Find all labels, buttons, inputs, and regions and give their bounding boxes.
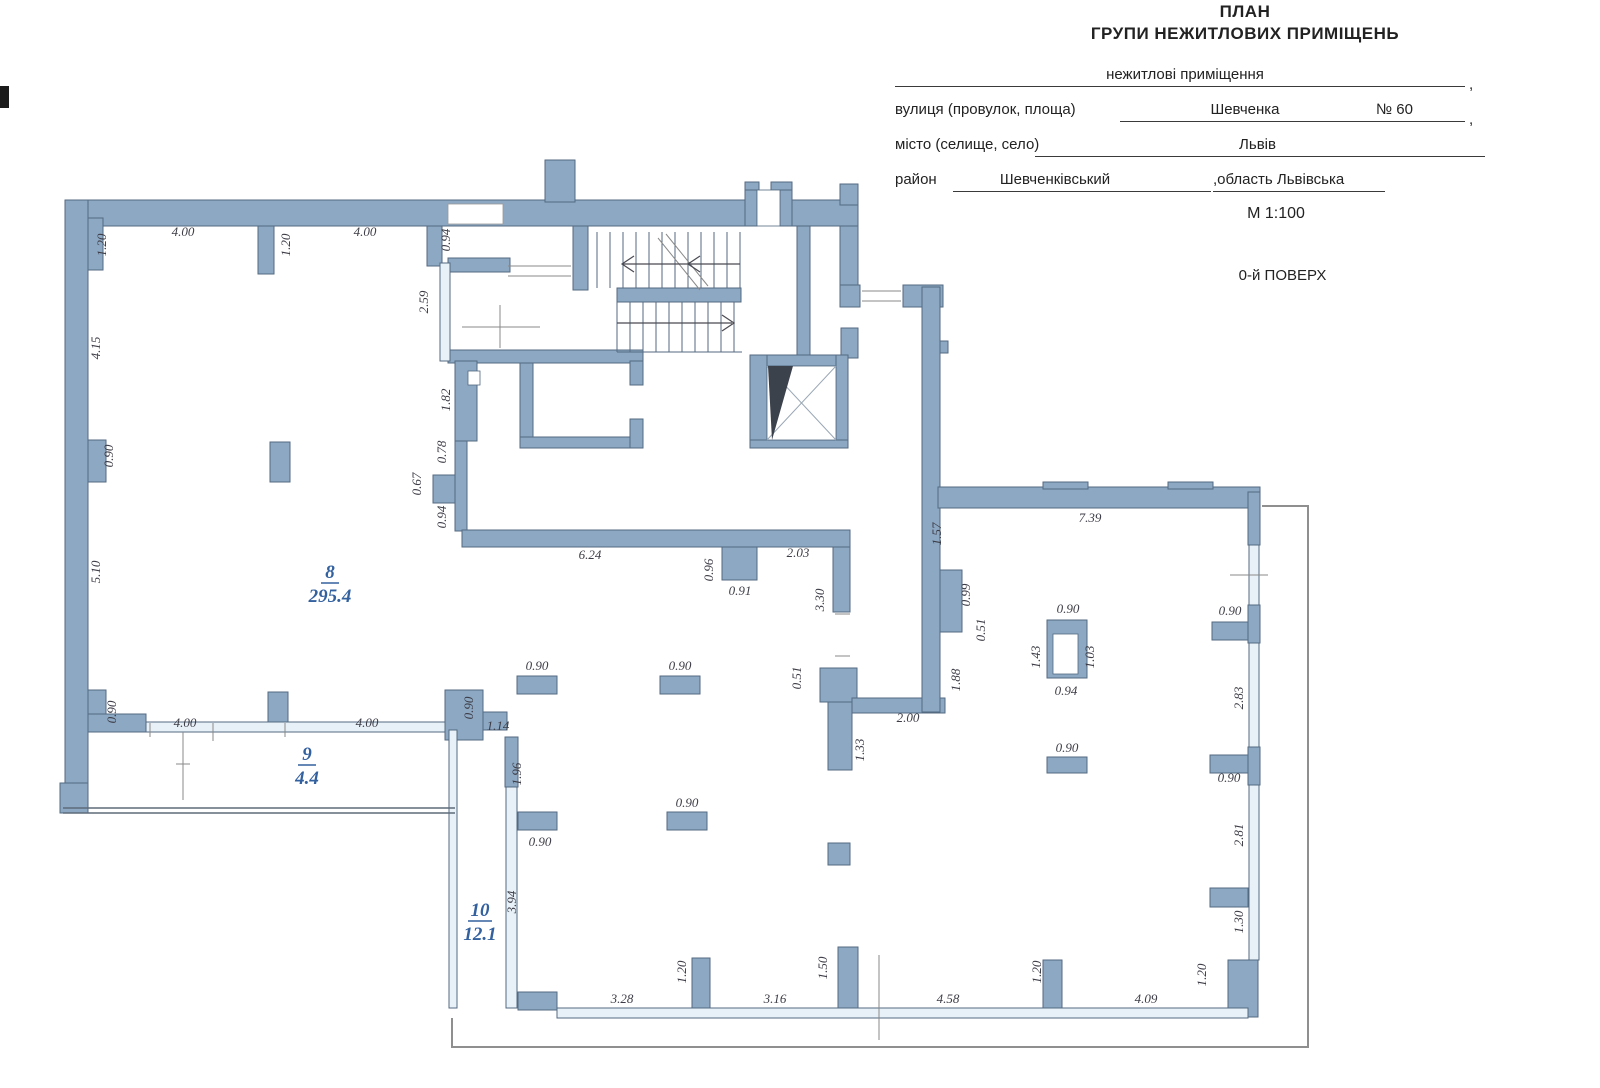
dim-label: 0.90 [461, 696, 476, 719]
dim-label: 1.50 [815, 956, 830, 979]
dim-label: 0.51 [789, 667, 804, 690]
dim-label: 0.67 [409, 472, 424, 495]
dim-label: 0.90 [1219, 603, 1242, 618]
dim-label: 4.58 [937, 991, 960, 1006]
dim-label: 0.90 [526, 658, 549, 673]
dim-label: 4.00 [356, 715, 379, 730]
dim-label: 4.09 [1135, 991, 1158, 1006]
dim-label: 1.88 [948, 668, 963, 691]
dim-label: 1.20 [1194, 963, 1209, 986]
site-boundary [452, 506, 1308, 1047]
dim-label: 0.96 [701, 558, 716, 581]
dim-label: 0.94 [438, 228, 453, 251]
dim-label: 1.20 [1029, 960, 1044, 983]
dim-label: 0.90 [1056, 740, 1079, 755]
staircase [597, 232, 742, 352]
stair-landing [617, 288, 741, 302]
dim-label: 1.20 [278, 233, 293, 256]
dim-label: 0.90 [101, 444, 116, 467]
room-area: 12.1 [463, 924, 496, 945]
dim-label: 5.10 [88, 560, 103, 583]
dim-label: 3.16 [763, 991, 787, 1006]
stair-arrow-up [622, 256, 740, 272]
dim-label: 4.00 [354, 224, 377, 239]
dimension-labels: 4.00 4.00 6.24 2.03 0.91 7.39 0.90 0.90 … [88, 224, 1246, 1006]
elevator-shaft [767, 366, 836, 440]
dim-label: 3.94 [504, 890, 519, 914]
room-area: 295.4 [308, 586, 352, 607]
dim-label: 0.94 [434, 505, 449, 528]
dim-label: 0.90 [1057, 601, 1080, 616]
dim-label: 0.78 [434, 440, 449, 463]
dim-label: 0.90 [669, 658, 692, 673]
dim-label: 1.33 [852, 738, 867, 761]
dim-label: 0.90 [529, 834, 552, 849]
dim-label: 0.51 [973, 619, 988, 642]
dim-label: 0.90 [104, 700, 119, 723]
dim-label: 2.81 [1231, 824, 1246, 847]
dim-label: 2.59 [416, 290, 431, 313]
room-labels: 8 295.4 9 4.4 10 12.1 [294, 562, 497, 945]
dim-label: 0.99 [958, 583, 973, 606]
dim-label: 4.00 [174, 715, 197, 730]
dim-label: 0.90 [676, 795, 699, 810]
dim-label: 2.00 [897, 710, 920, 725]
window-walls [146, 263, 1259, 1018]
floor-plan: 4.00 4.00 6.24 2.03 0.91 7.39 0.90 0.90 … [0, 0, 1600, 1088]
room-number: 9 [302, 744, 312, 765]
dim-label: 3.30 [812, 588, 827, 612]
room-number: 10 [471, 900, 491, 921]
dim-label: 1.20 [94, 233, 109, 256]
dim-label: 1.14 [487, 718, 510, 733]
dim-label: 1.96 [509, 762, 524, 785]
dim-label: 4.15 [88, 336, 103, 359]
dim-label: 1.43 [1028, 645, 1043, 668]
dim-label: 0.90 [1218, 770, 1241, 785]
dim-label: 0.91 [729, 583, 752, 598]
dim-label: 7.39 [1079, 510, 1102, 525]
dim-label: 3.28 [610, 991, 634, 1006]
dim-label: 1.82 [438, 388, 453, 411]
dim-label: 2.83 [1231, 686, 1246, 709]
dim-label: 4.00 [172, 224, 195, 239]
stair-arrow-down [617, 315, 734, 331]
room-number: 8 [325, 562, 335, 583]
dim-label: 0.94 [1055, 683, 1078, 698]
dim-label: 1.57 [929, 522, 944, 545]
dim-label: 1.03 [1082, 645, 1097, 668]
dim-label: 1.20 [674, 960, 689, 983]
room-area: 4.4 [294, 768, 319, 789]
room9-bottom-line [63, 808, 455, 813]
dim-label: 1.30 [1231, 910, 1246, 933]
dim-label: 2.03 [787, 545, 810, 560]
dim-label: 6.24 [579, 547, 602, 562]
